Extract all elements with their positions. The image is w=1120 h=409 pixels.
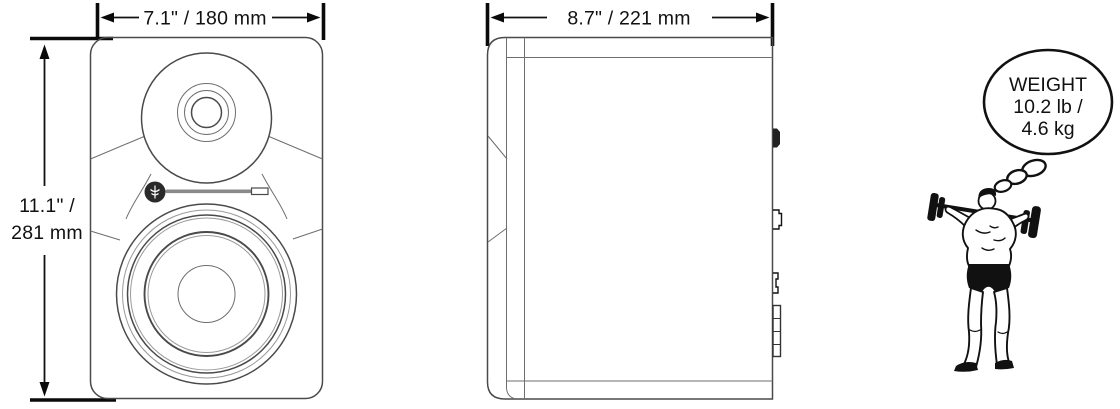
arrow-left-icon [491,13,505,23]
rear-terminal-icon [773,306,781,357]
rear-switch-icon [773,210,782,229]
weight-callout: WEIGHT 10.2 lb / 4.6 kg [927,50,1112,372]
rear-clip-icon [773,273,778,293]
strongman-barbell-icon [927,188,1042,372]
arrow-down-icon [40,382,50,397]
arrow-up-icon [40,45,50,60]
dimension-diagram: 7.1" / 180 mm 11.1" / 281 mm [0,0,1120,409]
weight-title: WEIGHT [1009,74,1087,96]
front-height-label-line1: 11.1" / [19,195,75,217]
diagram-canvas: 7.1" / 180 mm 11.1" / 281 mm [0,0,1120,409]
arrow-left-icon [101,13,115,23]
speaker-front-view-icon [91,38,323,399]
rear-knob-icon [773,129,780,148]
front-width-label: 7.1" / 180 mm [143,8,266,30]
weight-kilograms: 4.6 kg [1021,118,1074,140]
arrow-right-icon [307,13,321,23]
side-depth-dimension: 8.7" / 221 mm [488,3,773,46]
weight-pounds: 10.2 lb / [1013,96,1083,118]
arrow-right-icon [756,13,770,23]
front-height-label-line2: 281 mm [11,222,83,244]
side-depth-label: 8.7" / 221 mm [567,8,690,30]
front-height-dimension: 11.1" / 281 mm [11,39,116,401]
front-width-dimension: 7.1" / 180 mm [98,3,324,40]
brand-badge-icon [145,182,269,203]
side-view: 8.7" / 221 mm [488,3,782,399]
woofer-icon [117,204,297,384]
speaker-side-view-icon [488,38,782,400]
front-view: 7.1" / 180 mm 11.1" / 281 mm [11,3,323,400]
tweeter-icon [142,53,272,183]
